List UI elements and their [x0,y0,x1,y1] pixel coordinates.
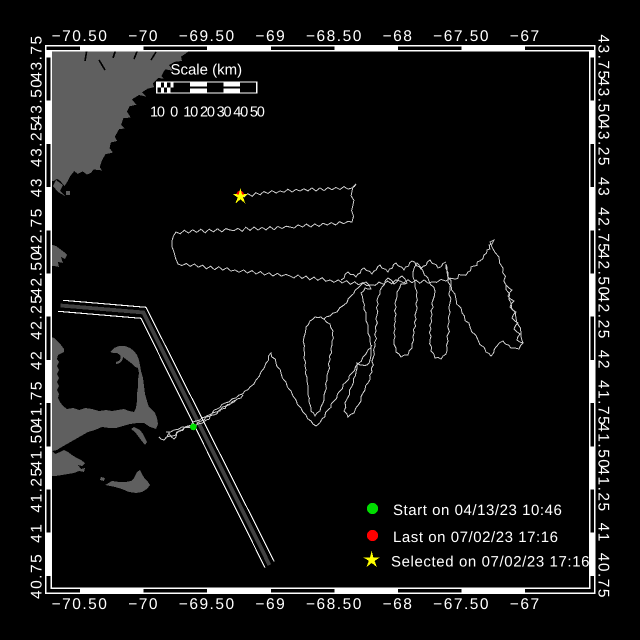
svg-text:−70.50: −70.50 [52,596,109,613]
svg-text:43: 43 [29,177,46,197]
svg-text:−67.50: −67.50 [433,596,490,613]
svg-text:0: 0 [170,105,178,121]
svg-text:−67.50: −67.50 [433,28,490,45]
svg-text:43.75: 43.75 [29,34,46,80]
svg-text:−69: −69 [255,596,286,613]
svg-text:−70: −70 [128,596,159,613]
svg-text:−70: −70 [128,28,159,45]
svg-text:40.75: 40.75 [29,553,46,599]
svg-text:42.25: 42.25 [595,294,612,340]
svg-text:Last on 07/02/23 17:16: Last on 07/02/23 17:16 [393,529,559,546]
svg-text:Start on 04/13/23 10:46: Start on 04/13/23 10:46 [393,502,562,519]
svg-text:−69.50: −69.50 [179,28,236,45]
svg-text:42.25: 42.25 [29,294,46,340]
svg-text:Selected on 07/02/23 17:16: Selected on 07/02/23 17:16 [391,554,590,571]
svg-text:41.25: 41.25 [595,466,612,512]
svg-text:−68: −68 [383,28,414,45]
svg-text:−68: −68 [383,596,414,613]
svg-text:40.75: 40.75 [595,553,612,599]
svg-text:−69: −69 [255,28,286,45]
svg-text:42.50: 42.50 [595,250,612,296]
svg-text:41.75: 41.75 [29,380,46,426]
svg-text:42: 42 [29,350,46,370]
svg-text:41.75: 41.75 [595,380,612,426]
svg-text:20: 20 [200,105,215,121]
svg-text:41: 41 [595,523,612,543]
svg-text:−68.50: −68.50 [306,28,363,45]
svg-text:41.50: 41.50 [595,423,612,469]
svg-text:41.50: 41.50 [29,423,46,469]
svg-text:50: 50 [250,105,265,121]
svg-text:43.75: 43.75 [595,34,612,80]
svg-text:43.25: 43.25 [29,121,46,167]
svg-text:42.50: 42.50 [29,250,46,296]
svg-text:43.25: 43.25 [595,121,612,167]
svg-text:43.50: 43.50 [29,78,46,124]
svg-text:43: 43 [595,177,612,197]
svg-text:41: 41 [29,523,46,543]
svg-text:−67: −67 [510,596,541,613]
svg-text:10: 10 [183,105,198,121]
svg-text:Scale (km): Scale (km) [170,62,242,79]
svg-text:10: 10 [150,105,165,121]
svg-text:43.50: 43.50 [595,78,612,124]
svg-text:42.75: 42.75 [29,207,46,253]
svg-text:−70.50: −70.50 [52,28,109,45]
svg-text:−69.50: −69.50 [179,596,236,613]
svg-text:−67: −67 [510,28,541,45]
svg-text:−68.50: −68.50 [306,596,363,613]
svg-text:41.25: 41.25 [29,466,46,512]
svg-text:30: 30 [217,105,232,121]
svg-text:42.75: 42.75 [595,207,612,253]
svg-text:42: 42 [595,350,612,370]
svg-text:40: 40 [233,105,248,121]
